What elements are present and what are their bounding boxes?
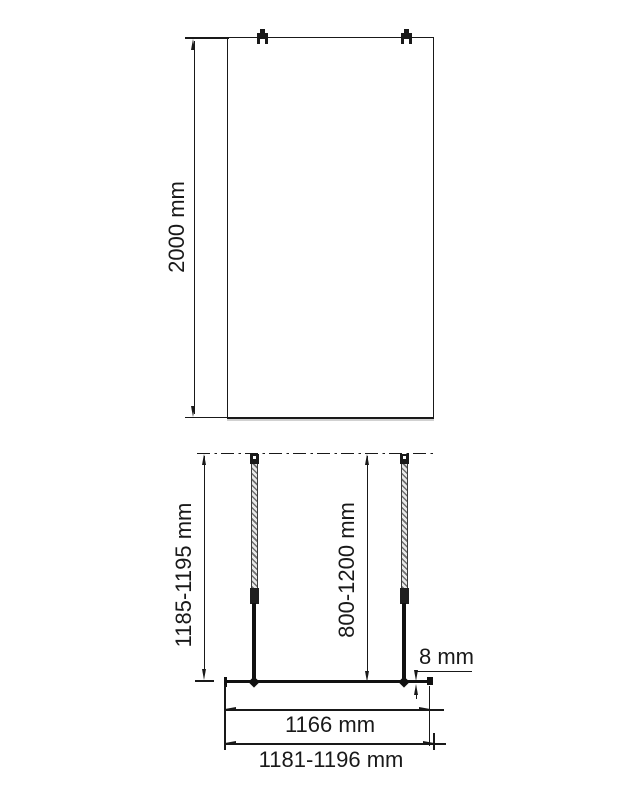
- leader-line-8mm: [416, 671, 472, 673]
- extension-tick-floor: [195, 680, 214, 682]
- arrowhead-down-icon: [191, 406, 195, 417]
- arrowhead-right-icon: [423, 741, 434, 745]
- brace-rod: [252, 603, 256, 680]
- arrowhead-right-icon: [419, 707, 430, 711]
- arrowhead-up-icon: [365, 454, 369, 465]
- brace-cap-icon: [250, 454, 259, 464]
- brace-sleeve: [400, 588, 409, 604]
- glass-wall-profile: [427, 677, 434, 686]
- arrowhead-up-icon: [191, 39, 195, 50]
- arrowhead-left-icon: [225, 707, 236, 711]
- arrowhead-left-icon: [225, 741, 236, 745]
- arrowhead-up-icon: [414, 684, 418, 695]
- brace-cap-notch: [403, 456, 406, 460]
- install-height-label: 1185-1195 mm: [171, 475, 197, 675]
- clamp-notch: [404, 39, 409, 45]
- arrowhead-up-icon: [202, 454, 206, 465]
- clamp-notch: [260, 39, 265, 45]
- support-bar-label: 800-1200 mm: [334, 470, 360, 670]
- wall-clamp-right-icon: [401, 29, 412, 44]
- front-height-label: 2000 mm: [164, 127, 190, 327]
- brace-sleeve: [250, 588, 259, 604]
- drawing-canvas: 2000 mm: [0, 0, 623, 800]
- brace-cap-notch: [253, 456, 256, 460]
- glass-thickness-label: 8 mm: [419, 644, 474, 670]
- dimension-line-glass-width: [225, 709, 444, 711]
- dimension-line-support-bar: [367, 456, 369, 672]
- glass-panel-front: [227, 37, 434, 419]
- arrowhead-down-icon: [365, 671, 369, 682]
- arrowhead-down-icon: [202, 669, 206, 680]
- brace-hatched-bar: [401, 464, 408, 588]
- dimension-line-total-width: [225, 743, 446, 745]
- stem-8mm: [416, 694, 418, 699]
- brace-cap-icon: [400, 454, 409, 464]
- brace-rod: [402, 603, 406, 680]
- glass-width-label: 1166 mm: [230, 712, 430, 738]
- wall-clamp-left-icon: [257, 29, 268, 44]
- glass-panel-plan: [225, 680, 429, 683]
- total-width-label: 1181-1196 mm: [231, 747, 431, 773]
- brace-hatched-bar: [251, 464, 258, 588]
- dimension-line-height: [194, 41, 196, 414]
- arrowhead-down-icon: [414, 670, 418, 681]
- dimension-line-install-height: [204, 456, 206, 670]
